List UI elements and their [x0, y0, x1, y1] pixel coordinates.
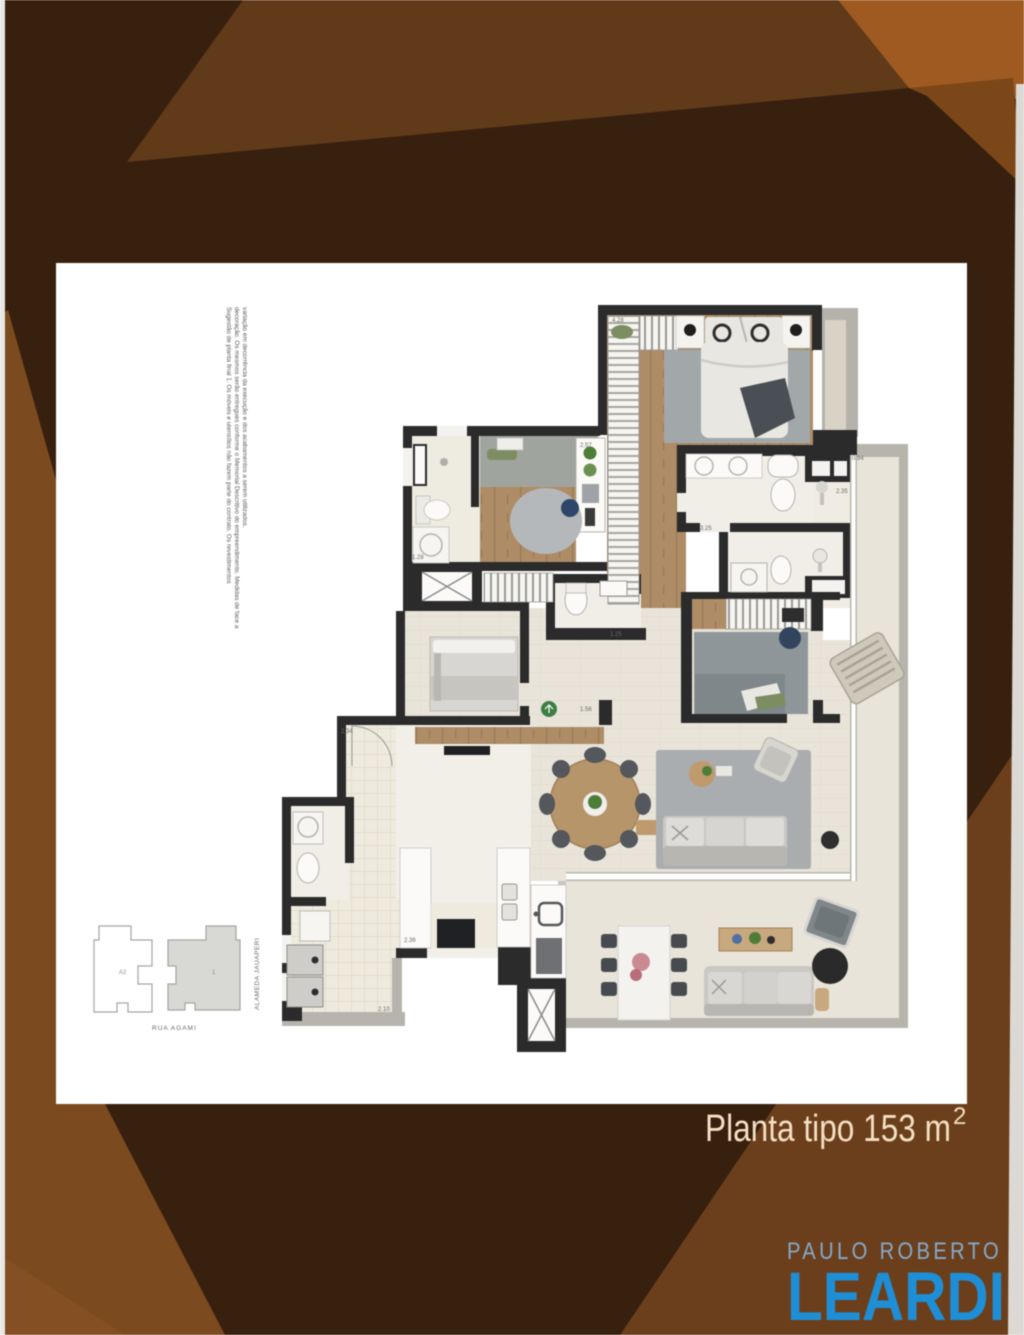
svg-text:2.34: 2.34 [341, 729, 353, 735]
svg-text:variação em decorrência da exe: variação em decorrência da execução e do… [241, 307, 248, 528]
svg-text:2.10: 2.10 [378, 1007, 390, 1013]
svg-text:3.25: 3.25 [700, 526, 712, 532]
svg-text:1.56: 1.56 [580, 707, 592, 713]
svg-text:1.25: 1.25 [610, 632, 622, 638]
svg-text:0.94: 0.94 [852, 456, 864, 462]
svg-text:2.35: 2.35 [836, 489, 848, 495]
svg-text:2: 2 [953, 1103, 966, 1130]
svg-text:2.57: 2.57 [580, 443, 592, 449]
svg-text:Planta tipo 153 m: Planta tipo 153 m [705, 1108, 951, 1150]
svg-text:1.28: 1.28 [412, 555, 424, 561]
svg-text:RUA AGAMI: RUA AGAMI [152, 1025, 197, 1032]
svg-text:Sugestão de planta final 1. Os: Sugestão de planta final 1. Os móveis e … [225, 307, 232, 584]
svg-text:A2: A2 [119, 970, 127, 976]
svg-text:LEARDI: LEARDI [787, 1258, 1005, 1335]
svg-text:ALAMEDA JAUAPERI: ALAMEDA JAUAPERI [254, 938, 261, 1010]
svg-text:2.36: 2.36 [404, 938, 416, 944]
svg-text:4.28: 4.28 [612, 318, 624, 324]
svg-text:decoração. Os mesmos serão ent: decoração. Os mesmos serão entregues con… [233, 307, 240, 629]
